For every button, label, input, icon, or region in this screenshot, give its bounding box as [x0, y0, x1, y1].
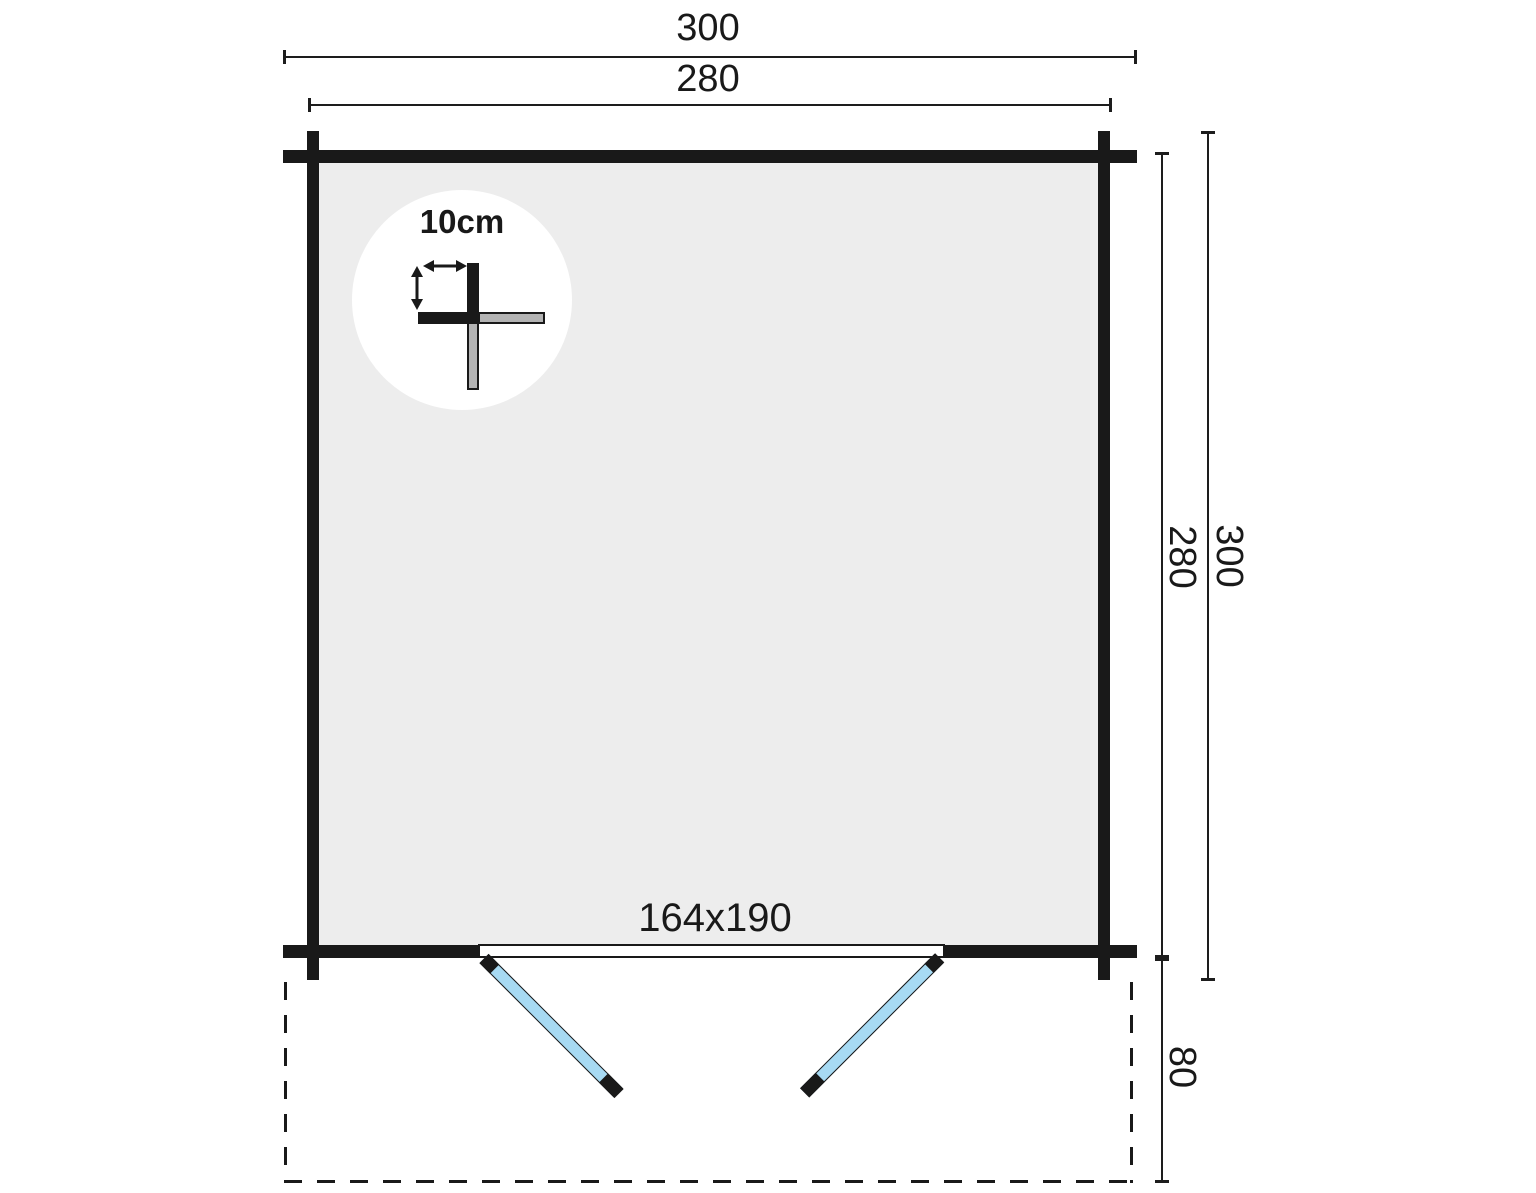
- door-threshold: [478, 944, 945, 958]
- door-tip-right: [799, 1073, 824, 1098]
- wall-thickness-arrows-icon: [400, 250, 480, 320]
- porch-outline-bottom: [284, 1180, 1133, 1183]
- porch-depth-label: 80: [1160, 1007, 1204, 1127]
- floor-plan: 10cm 164x190 300 280 280 300 80: [0, 0, 1536, 1193]
- log-cross-horizontal-gray: [474, 312, 545, 324]
- dimension-line-width-inner: [308, 104, 1112, 106]
- wall-left: [307, 131, 319, 980]
- inner-width-label: 280: [608, 57, 808, 101]
- log-cross-vertical-gray: [467, 318, 479, 390]
- wall-top: [283, 150, 1137, 163]
- wall-right: [1098, 131, 1110, 980]
- door-size-label: 164x190: [565, 896, 865, 940]
- wall-bottom-left-segment: [283, 945, 480, 958]
- door-tip-left: [599, 1073, 624, 1098]
- outer-width-label: 300: [608, 6, 808, 50]
- door-leaf-left: [479, 954, 623, 1098]
- porch-outline-right: [1130, 982, 1133, 1183]
- wall-bottom-right-segment: [943, 945, 1137, 958]
- outer-depth-label: 300: [1207, 496, 1251, 616]
- inner-depth-label: 280: [1160, 497, 1204, 617]
- porch-outline-left: [284, 982, 287, 1183]
- door-leaf-right: [800, 954, 944, 1098]
- wall-thickness-label: 10cm: [392, 204, 532, 240]
